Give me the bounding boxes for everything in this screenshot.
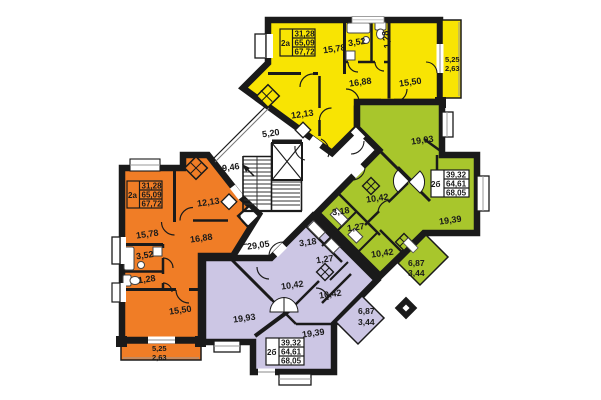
svg-text:2а: 2а: [281, 39, 290, 48]
svg-text:2,63: 2,63: [152, 353, 167, 362]
svg-text:5,25: 5,25: [152, 344, 167, 353]
svg-text:68,05: 68,05: [281, 357, 302, 366]
svg-text:2б: 2б: [267, 348, 276, 357]
svg-text:31,28: 31,28: [142, 182, 163, 191]
svg-text:3,44: 3,44: [358, 317, 375, 327]
svg-text:6,87: 6,87: [358, 306, 375, 316]
svg-text:68,05: 68,05: [446, 189, 467, 198]
svg-text:2б: 2б: [431, 180, 440, 189]
svg-text:39,32: 39,32: [446, 171, 467, 180]
svg-text:5,25: 5,25: [445, 55, 460, 64]
svg-text:31,28: 31,28: [295, 30, 316, 39]
svg-text:65,09: 65,09: [295, 39, 316, 48]
svg-text:67,72: 67,72: [142, 200, 163, 209]
svg-text:2,63: 2,63: [445, 64, 460, 73]
svg-text:67,72: 67,72: [295, 48, 316, 57]
svg-text:39,32: 39,32: [281, 339, 302, 348]
svg-text:6,87: 6,87: [408, 258, 425, 268]
svg-text:64,61: 64,61: [446, 180, 467, 189]
svg-text:65,09: 65,09: [142, 191, 163, 200]
svg-text:3,44: 3,44: [408, 268, 425, 278]
svg-text:64,61: 64,61: [281, 348, 302, 357]
svg-text:2а: 2а: [128, 191, 137, 200]
